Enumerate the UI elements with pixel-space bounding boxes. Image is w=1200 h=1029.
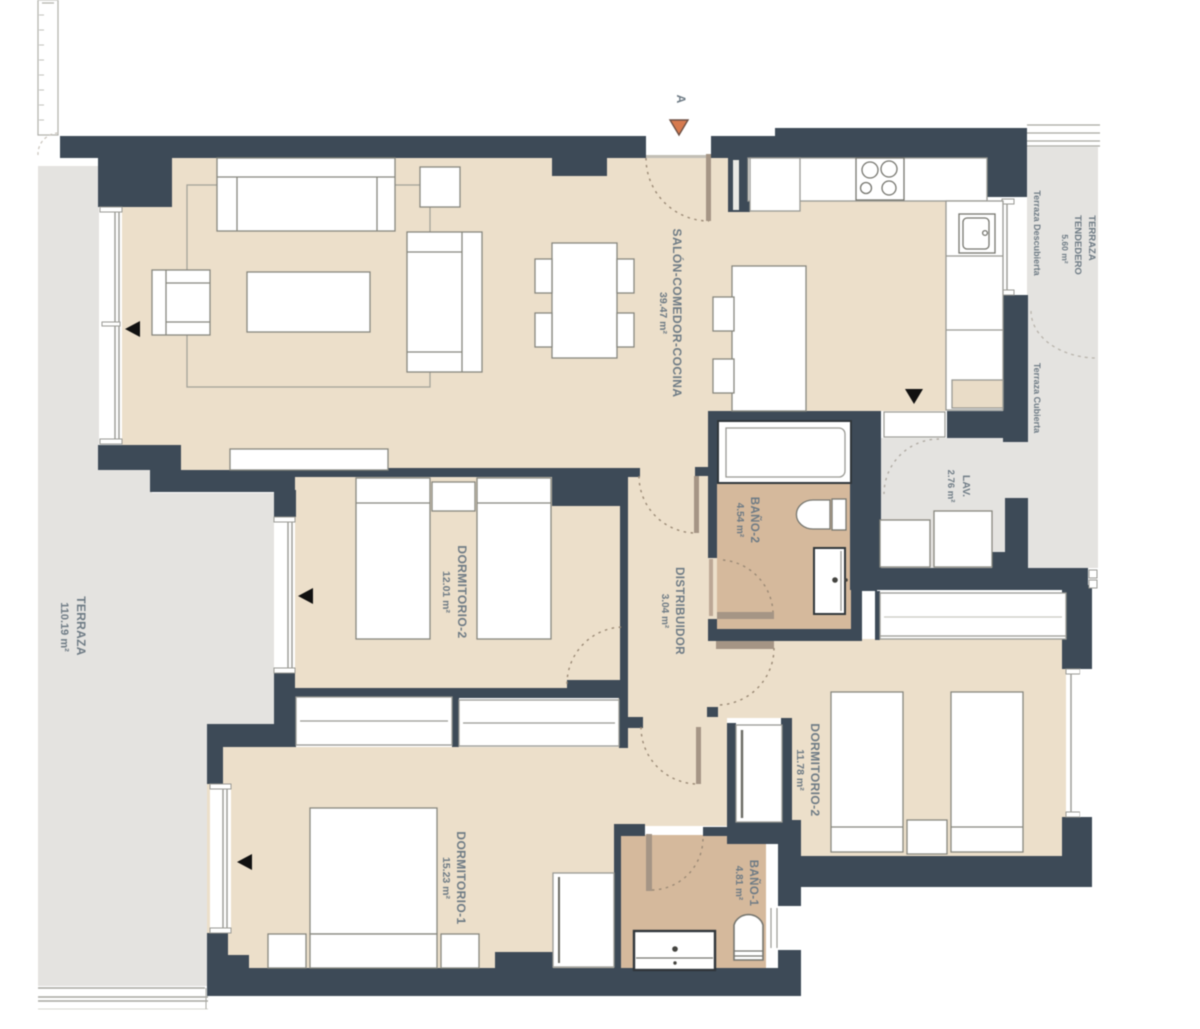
svg-text:39.47 m²: 39.47 m² <box>657 292 669 335</box>
svg-text:DORMITORIO-2: DORMITORIO-2 <box>455 545 469 638</box>
svg-text:11.78 m²: 11.78 m² <box>794 749 806 791</box>
svg-text:A: A <box>674 95 688 104</box>
svg-text:DORMITORIO-2: DORMITORIO-2 <box>808 723 822 816</box>
svg-text:TENDEDERO: TENDEDERO <box>1072 215 1083 275</box>
svg-text:15.23 m²: 15.23 m² <box>440 857 452 900</box>
svg-text:Terraza Descubierta: Terraza Descubierta <box>1032 190 1042 276</box>
svg-text:TERRAZA: TERRAZA <box>74 596 88 655</box>
svg-text:2.76 m²: 2.76 m² <box>945 470 956 503</box>
svg-text:12.01 m²: 12.01 m² <box>440 571 452 614</box>
svg-text:SALÓN-COMEDOR-COCINA: SALÓN-COMEDOR-COCINA <box>670 229 685 398</box>
svg-text:BAÑO-1: BAÑO-1 <box>747 860 760 907</box>
svg-text:DISTRIBUIDOR: DISTRIBUIDOR <box>673 567 685 655</box>
svg-text:DORMITORIO-1: DORMITORIO-1 <box>454 831 468 924</box>
svg-text:4.54 m²: 4.54 m² <box>734 503 745 538</box>
svg-text:LAV.: LAV. <box>960 475 972 497</box>
svg-text:Terraza Cubierta: Terraza Cubierta <box>1032 363 1042 434</box>
svg-text:3.04 m²: 3.04 m² <box>659 594 670 629</box>
svg-text:110.19 m²: 110.19 m² <box>58 602 70 652</box>
svg-text:TERRAZA: TERRAZA <box>1086 215 1097 261</box>
svg-text:4.81 m²: 4.81 m² <box>733 866 744 901</box>
svg-text:5.60 m²: 5.60 m² <box>1060 234 1070 263</box>
svg-text:BAÑO-2: BAÑO-2 <box>748 497 761 544</box>
